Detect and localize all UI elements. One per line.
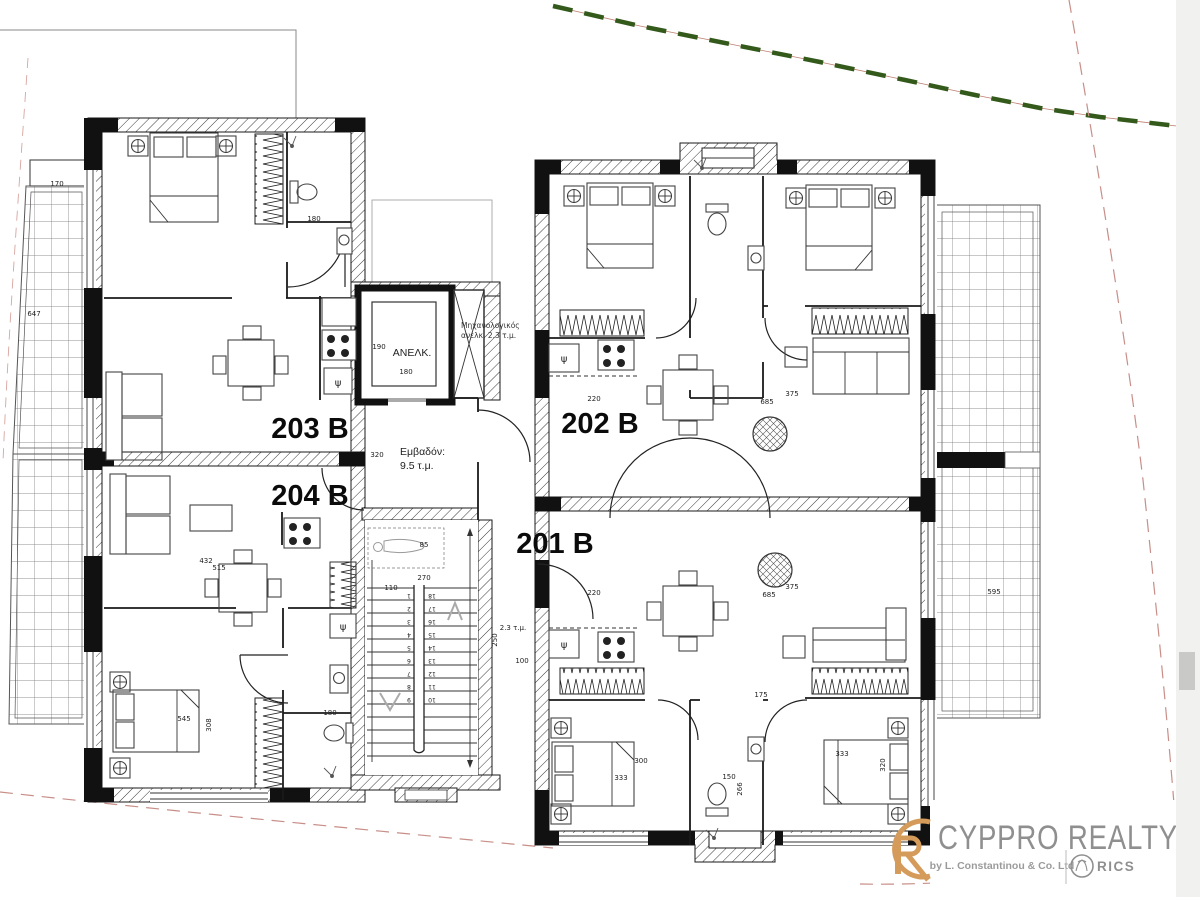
bed-202b-2 [806,185,872,270]
boundary-underlay-line [553,6,1185,127]
svg-text:515: 515 [212,564,225,572]
svg-text:220: 220 [587,589,600,597]
scrollbar-track[interactable] [1176,0,1200,897]
brand-name: CYPPRO REALTY [938,819,1178,857]
site-reference-line [0,30,296,118]
svg-text:1: 1 [407,592,411,599]
sofa-201b [783,608,906,662]
unit-label-201b: 201 B [516,528,593,560]
svg-text:270: 270 [417,574,430,582]
round-chair-202b [753,417,787,451]
svg-text:220: 220 [587,395,600,403]
svg-text:320: 320 [879,758,887,771]
lobby-area-label1: Εμβαδόν: [400,446,445,458]
svg-text:320: 320 [370,451,383,459]
svg-text:2: 2 [407,605,411,612]
svg-text:100: 100 [515,657,528,665]
svg-text:545: 545 [177,715,190,723]
roof-outline [372,200,492,292]
svg-text:333: 333 [614,774,627,782]
svg-text:10: 10 [428,696,436,703]
kitchen-201b: ψ [549,628,640,662]
scrollbar-thumb[interactable] [1179,652,1195,690]
svg-text:685: 685 [762,591,775,599]
viewer-right-strip [1176,0,1200,897]
svg-text:647: 647 [27,310,40,318]
unit-label-203b: 203 B [271,413,348,445]
core: ΑΝΕΛΚ. Μηχανολογικός ανελκ. 2.3 τ.μ. Εμβ… [351,282,520,802]
sink-symbol: ψ [335,378,342,389]
svg-text:2.3 τ.μ.: 2.3 τ.μ. [500,624,526,632]
svg-text:375: 375 [785,390,798,398]
bed-202b-1 [587,183,653,268]
svg-text:85: 85 [420,541,429,549]
svg-text:150: 150 [722,773,735,781]
svg-text:180: 180 [399,368,412,376]
svg-text:12: 12 [428,670,436,677]
svg-text:9: 9 [407,696,411,703]
svg-text:8: 8 [407,683,411,690]
svg-text:3: 3 [407,618,411,625]
svg-text:250: 250 [491,633,499,646]
sink-symbol: ψ [561,640,568,651]
balcony-right [935,205,1040,718]
svg-text:4: 4 [407,631,411,638]
svg-text:375: 375 [785,583,798,591]
svg-text:15: 15 [428,631,436,638]
svg-text:17: 17 [428,605,436,612]
balcony-left-top [13,160,88,454]
svg-text:170: 170 [50,180,63,188]
kitchen-204b: ψ [284,518,356,638]
svg-text:308: 308 [205,718,213,731]
sofa-204b [110,474,232,554]
svg-text:300: 300 [634,757,647,765]
brand-byline: by L. Constantinou & Co. Ltd [930,860,1075,872]
unit-label-204b: 204 B [271,480,348,512]
rics-label: RICS [1097,859,1135,874]
sofa-203b [106,372,162,460]
svg-text:5: 5 [407,644,411,651]
svg-text:333: 333 [835,750,848,758]
staircase: 1 2 3 4 5 6 7 8 9 18 17 16 15 14 13 12 1… [365,520,478,775]
lobby: Εμβαδόν: 9.5 τ.μ. [400,398,478,520]
elevator-label: ΑΝΕΛΚ. [393,347,432,359]
floorplan-drawing: ΑΝΕΛΚ. Μηχανολογικός ανελκ. 2.3 τ.μ. Εμβ… [0,0,1200,897]
sink-symbol: ψ [340,622,347,633]
boundary-red-dashed-right [1069,0,1181,897]
furniture: ψ ψ ψ ψ [106,133,909,840]
bed-203b [150,133,218,222]
svg-text:11: 11 [428,683,436,690]
svg-text:14: 14 [428,644,436,651]
logo-block: CYPPRO REALTY by L. Constantinou & Co. L… [895,800,1180,897]
svg-text:685: 685 [760,398,773,406]
svg-text:432: 432 [199,557,212,565]
unit-label-202b: 202 B [561,408,638,440]
boundary-green-dashed-line [553,6,1185,127]
interior-walls [104,132,921,845]
svg-text:266: 266 [736,782,744,796]
kitchen-202b: ψ [549,340,640,376]
floor-divider-left [88,452,365,466]
svg-text:180: 180 [323,709,336,717]
ceiling-light-symbols [110,136,908,824]
balcony-divider-wall [935,452,1005,468]
mech-label-line1: Μηχανολογικός [461,321,520,330]
svg-text:18: 18 [428,592,436,599]
balcony-left-bottom [9,454,88,724]
sofa-202b [785,338,909,394]
sink-symbol: ψ [561,354,568,365]
svg-text:175: 175 [754,691,767,699]
svg-text:6: 6 [407,657,411,664]
kitchen-203b: ψ [322,298,356,394]
svg-text:180: 180 [307,215,320,223]
round-chair-201b [758,553,792,587]
svg-text:190: 190 [372,343,385,351]
svg-text:16: 16 [428,618,436,625]
lobby-area-label2: 9.5 τ.μ. [400,460,434,472]
svg-text:13: 13 [428,657,436,664]
floor-divider-right [535,497,935,511]
svg-text:110: 110 [384,584,397,592]
svg-text:7: 7 [407,670,411,677]
floorplan-page: ΑΝΕΛΚ. Μηχανολογικός ανελκ. 2.3 τ.μ. Εμβ… [0,0,1200,897]
svg-text:595: 595 [987,588,1000,596]
mech-label-line2: ανελκ. 2.3 τ.μ. [461,331,516,340]
